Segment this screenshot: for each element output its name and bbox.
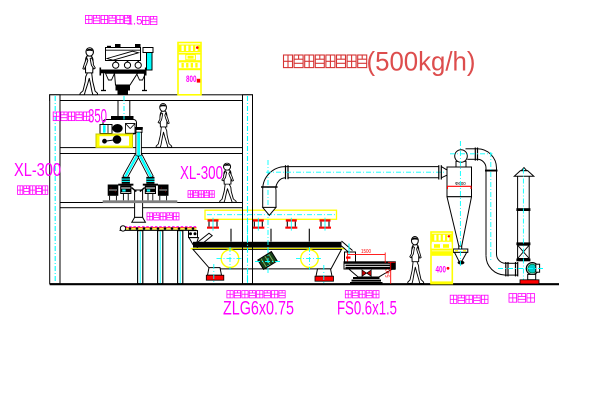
svg-text:540: 540 <box>385 269 391 278</box>
svg-text:XL-300: XL-300 <box>180 162 223 183</box>
svg-text:(500kg/h): (500kg/h) <box>367 47 476 77</box>
svg-text:1500: 1500 <box>361 249 371 255</box>
svg-text:350: 350 <box>88 107 107 128</box>
svg-text:FS0.6x1.5: FS0.6x1.5 <box>337 298 397 320</box>
svg-text:400: 400 <box>436 265 447 276</box>
svg-text:XL-300: XL-300 <box>14 159 61 180</box>
svg-text:800: 800 <box>186 74 197 85</box>
svg-text:ZLG6x0.75: ZLG6x0.75 <box>223 298 294 320</box>
svg-text:1.5: 1.5 <box>127 16 143 28</box>
